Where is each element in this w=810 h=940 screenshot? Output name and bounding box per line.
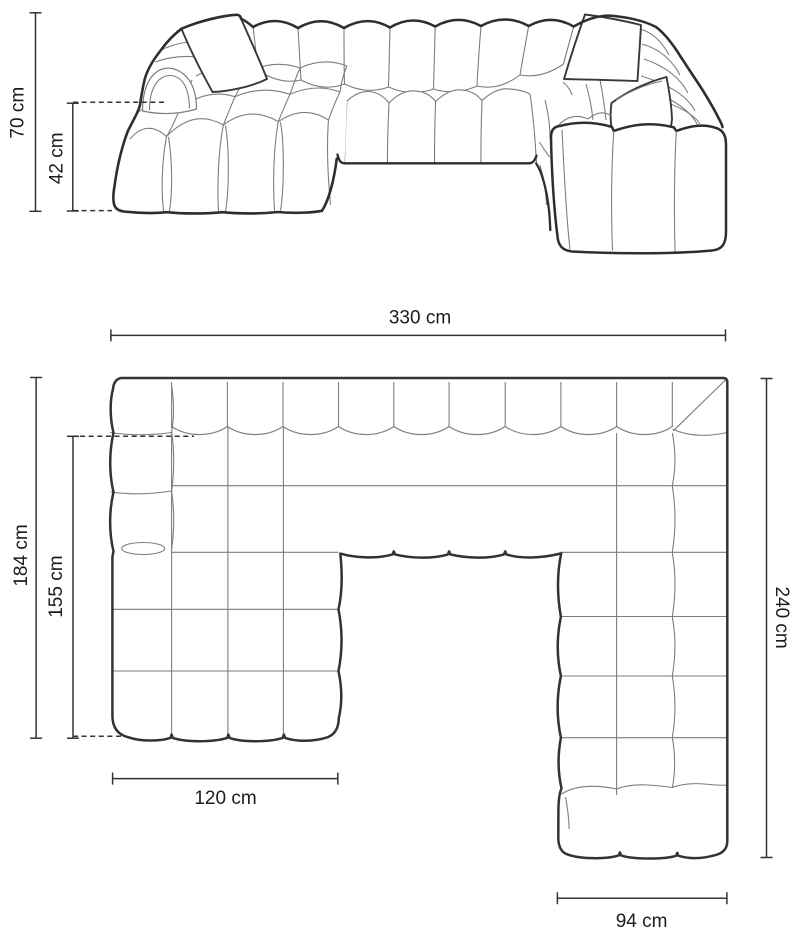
svg-text:184 cm: 184 cm [11,524,32,586]
svg-text:155 cm: 155 cm [46,555,67,617]
svg-text:330 cm: 330 cm [389,308,451,329]
svg-text:70 cm: 70 cm [8,87,29,139]
svg-text:240 cm: 240 cm [771,586,792,648]
svg-text:94 cm: 94 cm [616,911,668,932]
svg-text:120 cm: 120 cm [194,788,256,809]
svg-text:42 cm: 42 cm [46,132,67,184]
